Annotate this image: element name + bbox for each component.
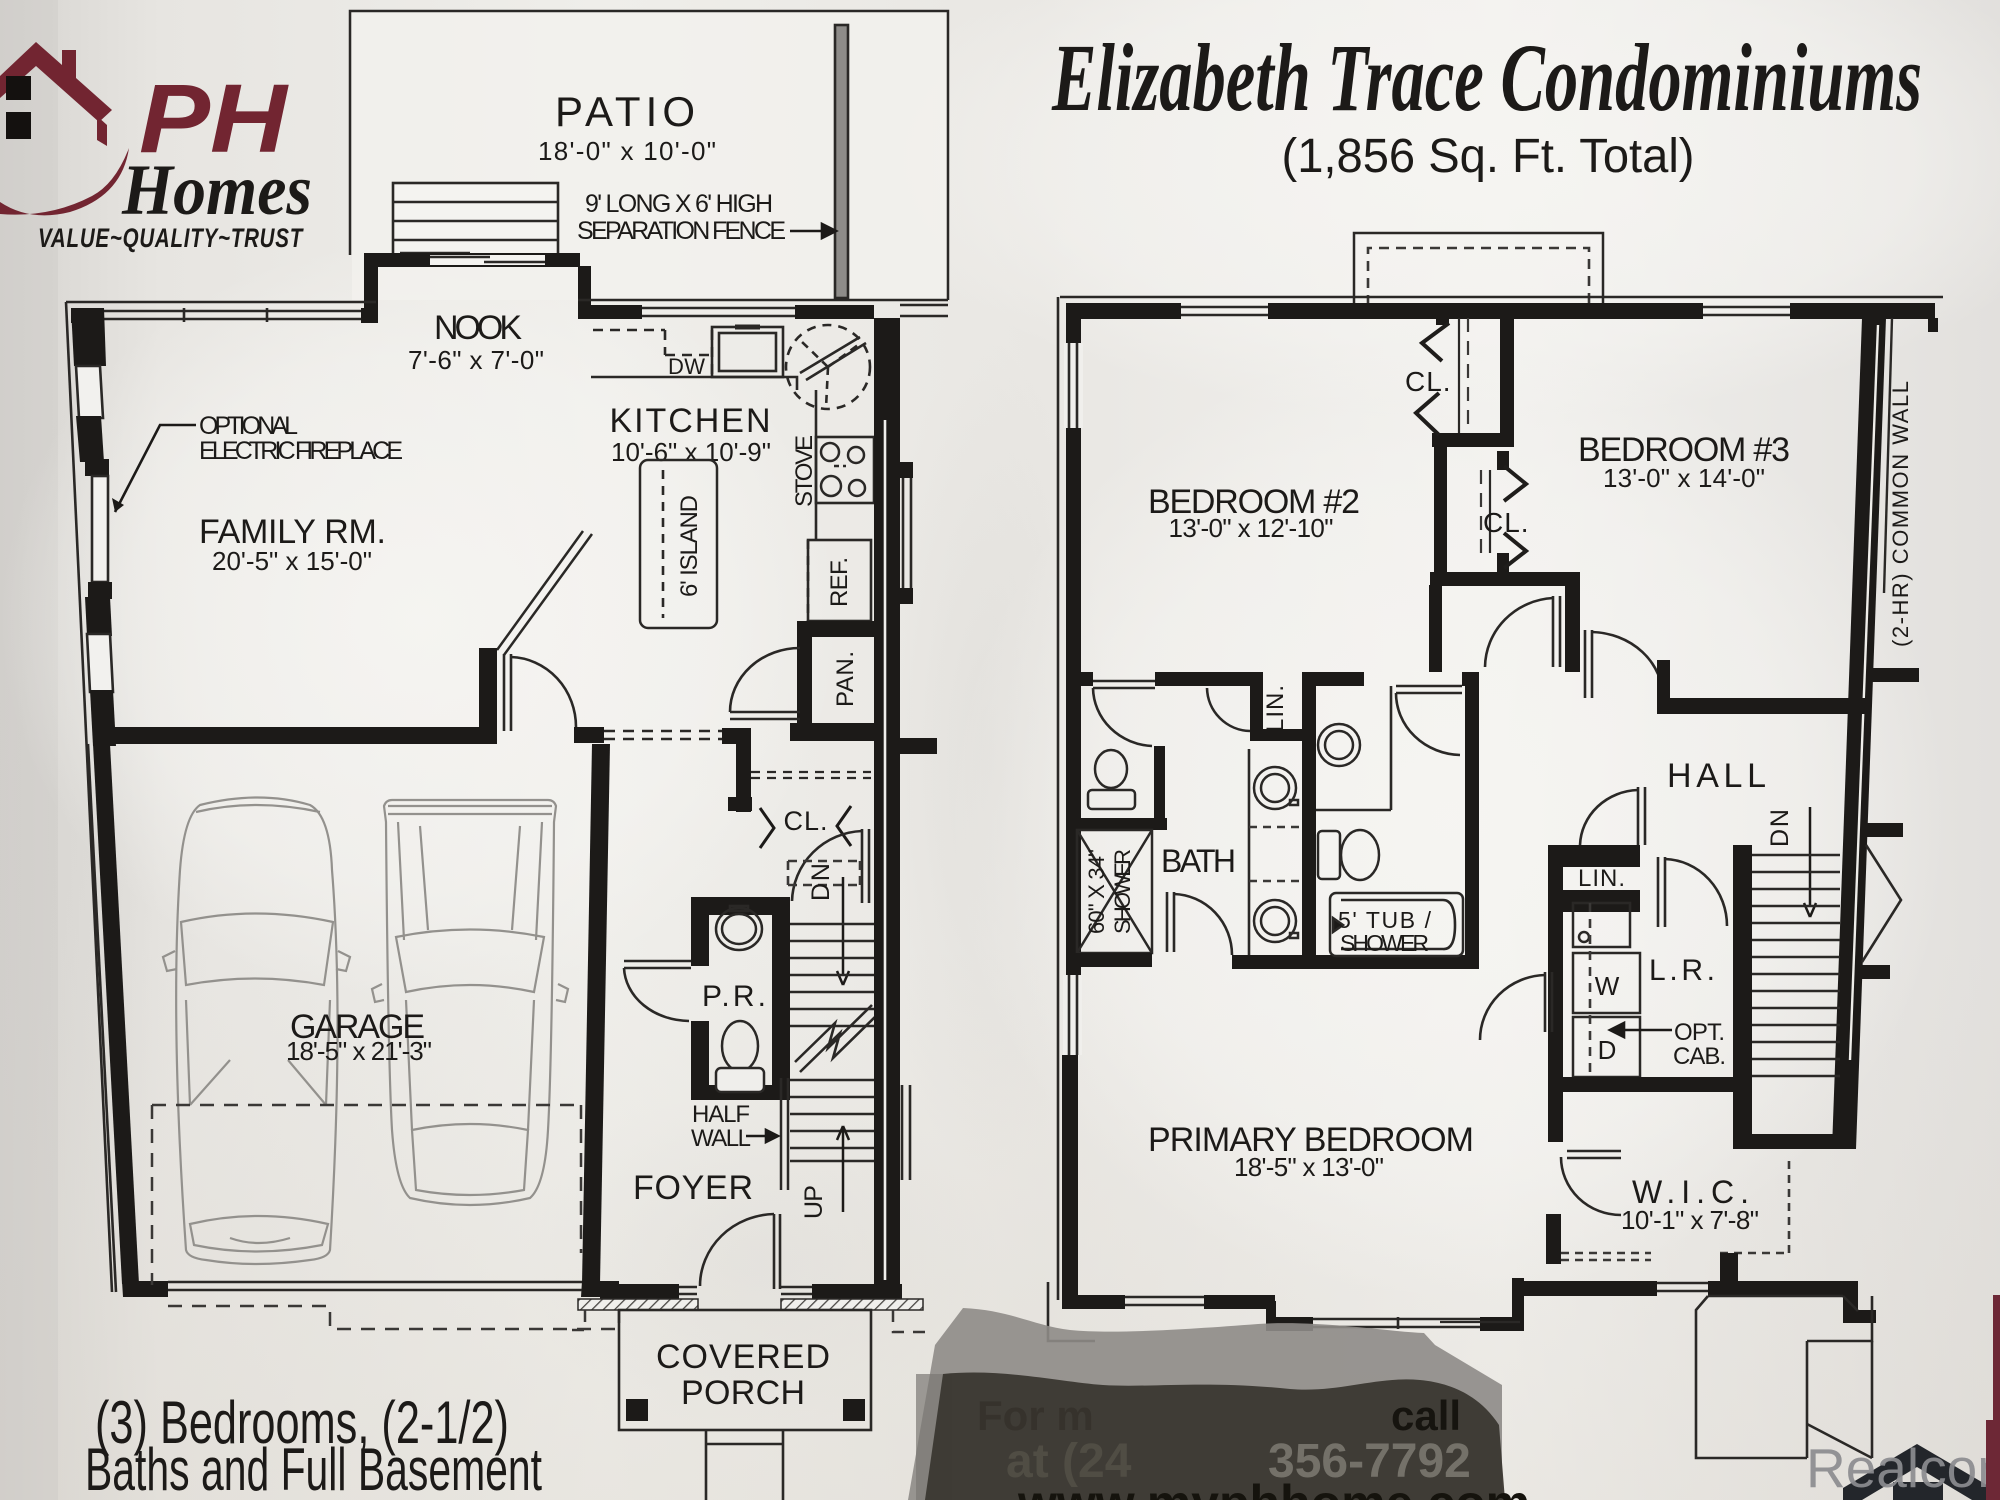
svg-text:10'-1" x 7'-8": 10'-1" x 7'-8": [1621, 1205, 1761, 1235]
svg-text:PORCH: PORCH: [681, 1374, 809, 1412]
svg-text:9' LONG X 6' HIGH: 9' LONG X 6' HIGH: [585, 190, 775, 218]
svg-text:Homes: Homes: [121, 150, 312, 230]
svg-text:6' ISLAND: 6' ISLAND: [676, 493, 703, 597]
svg-text:7'-6" x 7'-0": 7'-6" x 7'-0": [408, 345, 546, 375]
svg-text:WALL: WALL: [691, 1125, 753, 1152]
svg-text:HALL: HALL: [1667, 757, 1771, 795]
svg-text:LIN.: LIN.: [1578, 865, 1626, 892]
svg-text:Realcomp: Realcomp: [1806, 1437, 2000, 1499]
svg-text:18'-5" x 21'-3": 18'-5" x 21'-3": [286, 1036, 434, 1066]
svg-text:FOYER: FOYER: [633, 1169, 757, 1207]
svg-text:(2-HR) COMMON WALL: (2-HR) COMMON WALL: [1888, 379, 1913, 647]
svg-text:W: W: [1595, 971, 1620, 1001]
svg-text:P.R.: P.R.: [702, 980, 768, 1013]
svg-text:call: call: [1391, 1392, 1461, 1439]
svg-text:CL.: CL.: [783, 806, 828, 836]
svg-text:NOOK: NOOK: [434, 309, 526, 347]
svg-text:20'-5" x 15'-0": 20'-5" x 15'-0": [212, 546, 374, 576]
svg-text:18'-5" x 13'-0": 18'-5" x 13'-0": [1234, 1152, 1386, 1182]
svg-text:PATIO: PATIO: [555, 88, 701, 135]
svg-text:13'-0" x 12'-10": 13'-0" x 12'-10": [1169, 513, 1336, 543]
svg-text:L.R.: L.R.: [1649, 954, 1717, 987]
svg-text:www.myphhome.com: www.myphhome.com: [1017, 1475, 1530, 1500]
svg-text:13'-0" x 14'-0": 13'-0" x 14'-0": [1603, 463, 1767, 493]
svg-text:STOVE: STOVE: [791, 433, 818, 507]
svg-text:10'-6" x 10'-9": 10'-6" x 10'-9": [611, 437, 773, 467]
svg-text:SHOWER: SHOWER: [1340, 930, 1430, 956]
svg-text:BATH: BATH: [1161, 843, 1239, 879]
svg-text:Baths and Full Basement: Baths and Full Basement: [85, 1436, 542, 1500]
svg-text:(1,856 Sq. Ft. Total): (1,856 Sq. Ft. Total): [1282, 130, 1695, 183]
svg-text:DW: DW: [668, 354, 706, 379]
svg-text:D: D: [1598, 1035, 1617, 1065]
svg-text:OPTIONAL: OPTIONAL: [199, 412, 300, 440]
svg-text:CAB.: CAB.: [1673, 1043, 1727, 1070]
svg-text:UP: UP: [800, 1183, 828, 1219]
svg-text:18'-0" x 10'-0": 18'-0" x 10'-0": [538, 136, 718, 166]
svg-text:VALUE~QUALITY~TRUST: VALUE~QUALITY~TRUST: [38, 223, 304, 253]
svg-text:REF.: REF.: [826, 555, 853, 607]
svg-text:COVERED: COVERED: [656, 1338, 834, 1376]
svg-text:SEPARATION FENCE: SEPARATION FENCE: [577, 217, 788, 245]
svg-text:OPT.: OPT.: [1674, 1019, 1726, 1046]
svg-text:DN: DN: [1766, 807, 1794, 847]
svg-text:HALF: HALF: [692, 1101, 752, 1128]
svg-text:For m: For m: [977, 1392, 1094, 1439]
svg-text:DN: DN: [807, 861, 835, 901]
svg-text:PAN.: PAN.: [832, 649, 859, 707]
svg-text:ELECTRIC FIREPLACE: ELECTRIC FIREPLACE: [199, 437, 405, 465]
svg-text:60" X 34": 60" X 34": [1084, 848, 1109, 934]
svg-text:LIN.: LIN.: [1262, 684, 1289, 732]
svg-text:Elizabeth Trace Condominiums: Elizabeth Trace Condominiums: [1051, 24, 1922, 131]
svg-text:KITCHEN: KITCHEN: [610, 402, 775, 440]
svg-text:CL.: CL.: [1483, 507, 1530, 538]
svg-text:SHOWER: SHOWER: [1110, 848, 1135, 934]
svg-text:CL.: CL.: [1405, 366, 1452, 397]
